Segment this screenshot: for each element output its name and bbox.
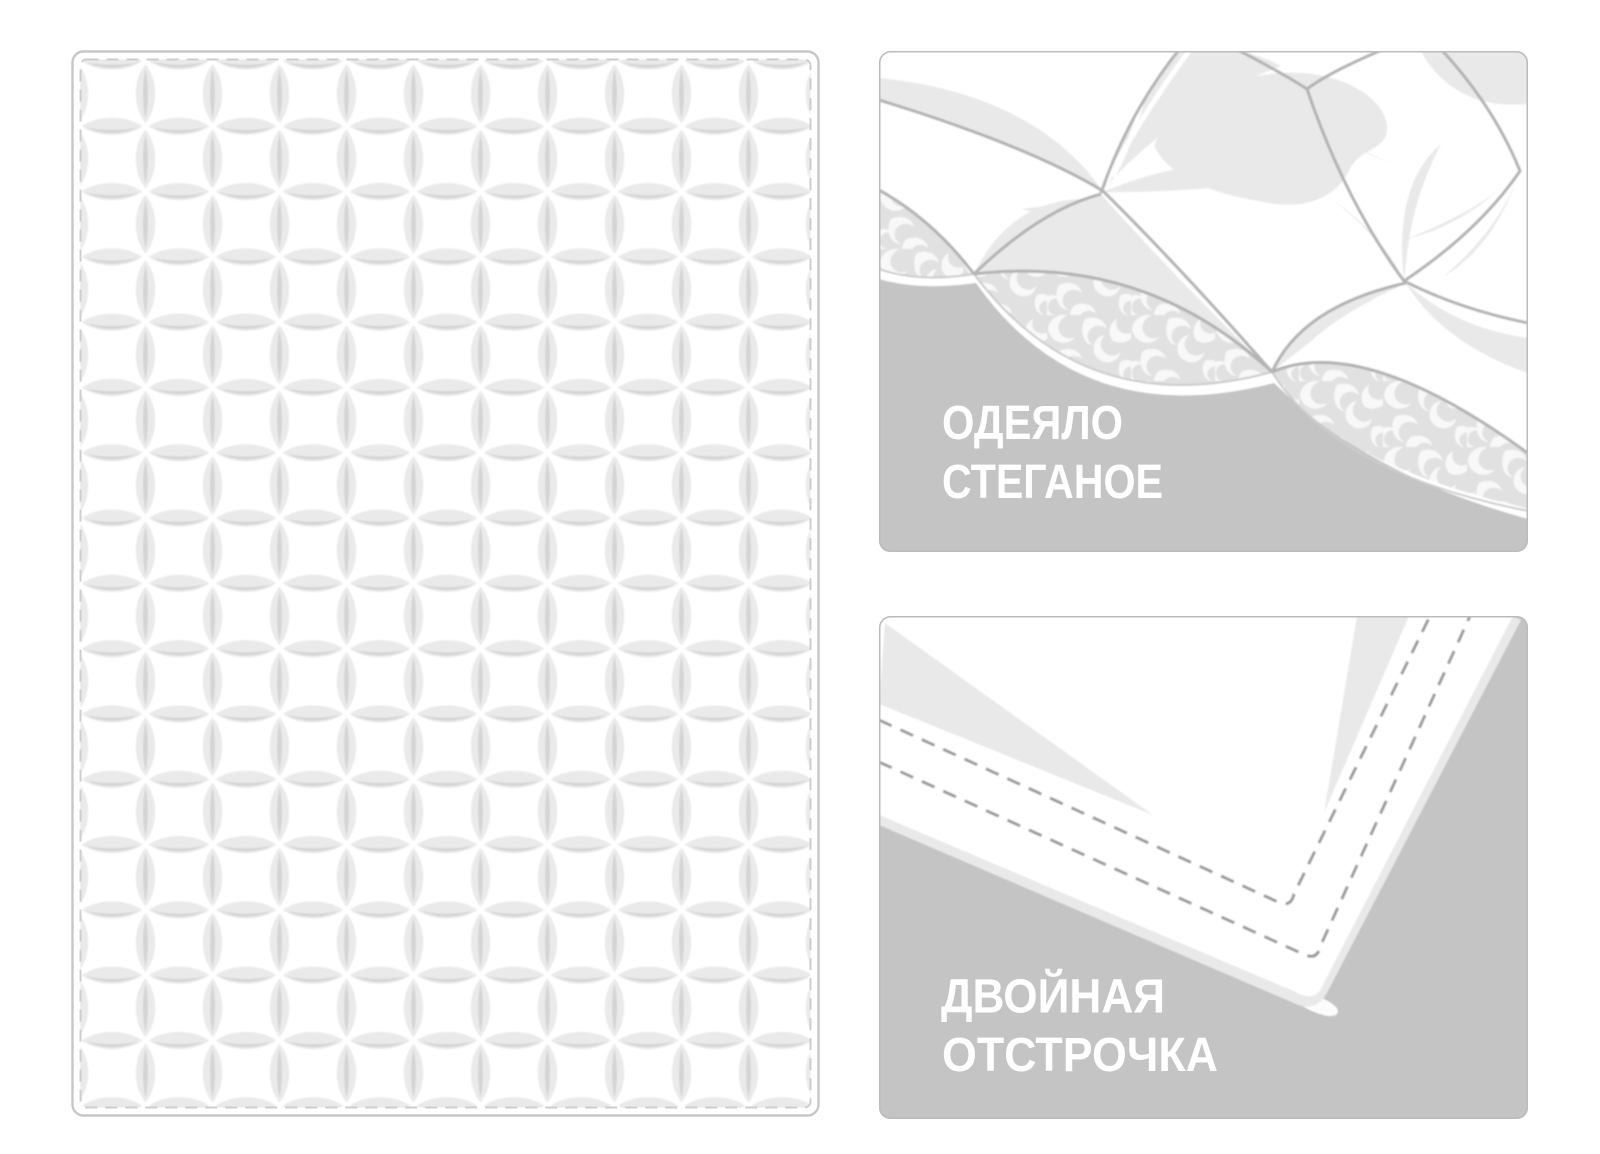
svg-text:ОТСТРОЧКА: ОТСТРОЧКА (942, 1029, 1218, 1082)
svg-text:ДВОЙНАЯ: ДВОЙНАЯ (941, 969, 1165, 1024)
svg-text:СТЕГАНОЕ: СТЕГАНОЕ (942, 456, 1163, 509)
svg-text:ОДЕЯЛО: ОДЕЯЛО (942, 397, 1123, 450)
